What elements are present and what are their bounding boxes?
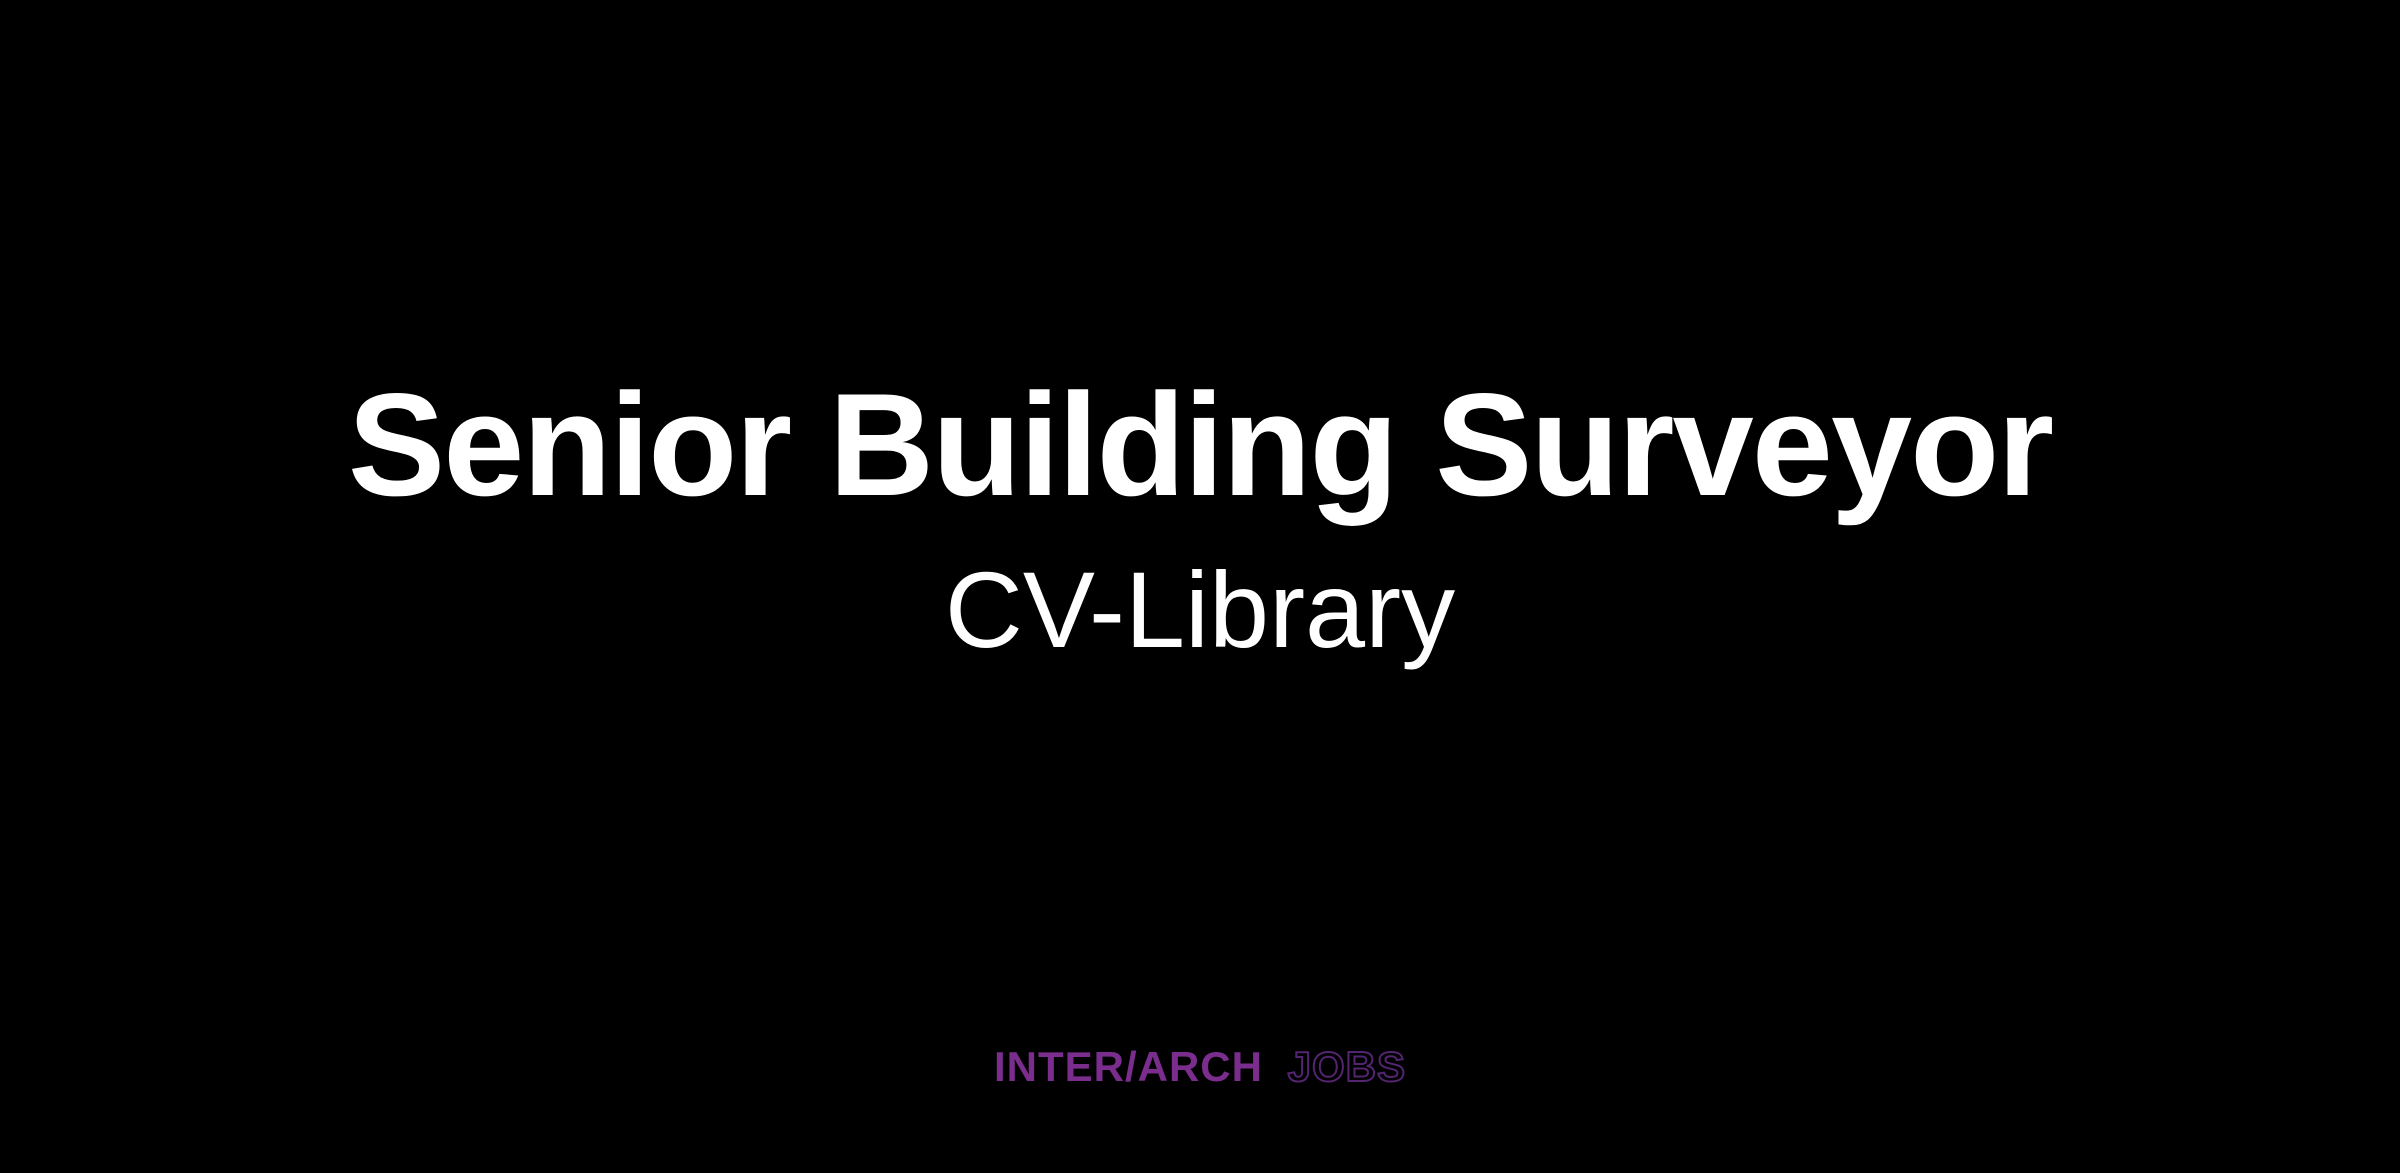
interarch-jobs-logo: INTER/ARCH JOBS [0,1046,2400,1088]
job-title: Senior Building Surveyor [0,372,2400,518]
job-card: Senior Building Surveyor CV-Library INTE… [0,0,2400,1173]
company-name: CV-Library [0,556,2400,664]
logo-text-interarch: INTER/ARCH [994,1043,1263,1090]
logo-text-jobs: JOBS [1288,1043,1406,1090]
